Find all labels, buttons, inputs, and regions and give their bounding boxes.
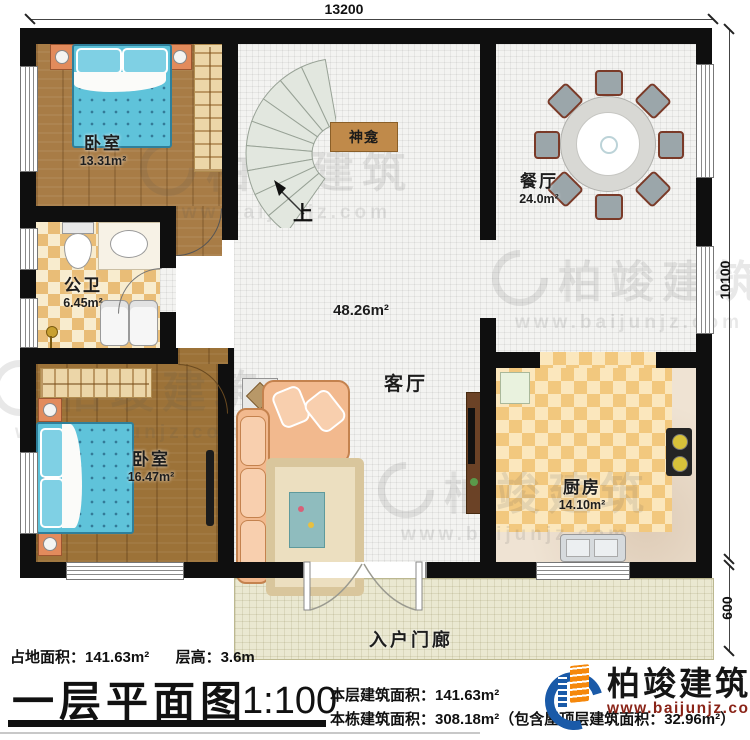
pillow — [40, 478, 64, 528]
window-bedroom2-bottom — [66, 562, 184, 580]
bathroom-label: 公卫 6.45m² — [44, 276, 122, 310]
sink-basin — [594, 539, 618, 557]
dining-label: 餐厅 24.0m² — [502, 172, 576, 206]
dining-chair — [534, 131, 560, 159]
stove-burner — [672, 456, 688, 472]
dimension-porch: 600 — [719, 588, 735, 628]
bedroom1-label: 卧室 13.31m² — [58, 134, 148, 168]
bedroom2-label: 卧室 16.47m² — [106, 450, 196, 484]
sofa-cushion — [240, 468, 266, 518]
site-area-text: 占地面积：141.63m² — [10, 649, 149, 666]
title-underline-thin — [0, 732, 480, 734]
nightstand — [38, 398, 62, 422]
window-dining-right — [696, 64, 714, 178]
bedroom1-wardrobe — [194, 44, 224, 172]
window-bedroom2-left — [20, 452, 38, 534]
wall-dining-left — [480, 28, 496, 240]
dining-chair — [595, 194, 623, 220]
bedroom2-wardrobe — [40, 368, 152, 398]
kitchen-label: 厨房 14.10m² — [534, 478, 630, 512]
window-bathroom-left-1 — [20, 228, 38, 270]
curved-staircase — [238, 42, 336, 228]
entry-double-door — [302, 560, 424, 630]
dining-chair — [658, 131, 684, 159]
window-kitchen-bottom — [536, 562, 630, 580]
footer-site-info: 占地面积：141.63m² 层高：3.6m — [10, 646, 255, 667]
sink-basin — [566, 539, 590, 557]
floor-plan-canvas: 柏竣建筑 www.baijunjz.com 柏竣建筑 www.baijunjz.… — [0, 0, 750, 740]
pillow — [76, 48, 122, 74]
living-area-label: 48.26m² — [318, 302, 404, 319]
plan-scale: 1:100 — [242, 680, 337, 723]
rug-center — [289, 492, 325, 548]
rug-flower — [298, 506, 304, 512]
shrine: 神龛 — [330, 122, 398, 152]
television — [468, 408, 475, 464]
bathroom-doorway — [160, 268, 176, 312]
bathroom-sink — [110, 230, 148, 258]
title-underline — [8, 720, 326, 727]
dining-chair — [595, 70, 623, 96]
wall-bedroom1-right — [222, 28, 238, 240]
nightstand — [38, 532, 62, 556]
wall-bedroom2-right — [218, 348, 234, 578]
wall-exterior-top — [20, 28, 712, 44]
nightstand — [50, 44, 74, 70]
floor-height-text: 层高：3.6m — [176, 649, 255, 666]
stairs-up-label: 上 — [293, 197, 313, 226]
sofa-cushion — [240, 416, 266, 466]
dimension-line-top — [30, 19, 713, 20]
dimension-right: 10100 — [717, 250, 733, 310]
dimension-top: 13200 — [300, 1, 388, 17]
floor-area-text: 本层建筑面积：141.63m² — [330, 684, 499, 705]
refrigerator — [500, 372, 530, 404]
brand-logo-icon — [543, 660, 601, 724]
floor-drain — [46, 326, 58, 338]
kitchen-doorway — [540, 352, 656, 368]
window-living-right — [696, 246, 714, 334]
porch-label: 入户门廊 — [356, 630, 466, 651]
wall-kitchen-top-right — [656, 352, 712, 368]
pillow — [40, 428, 64, 478]
rug-flower — [308, 522, 314, 528]
brand-url: www.baijunjz.com — [607, 700, 750, 718]
window-bedroom1-left — [20, 66, 38, 172]
shrine-label: 神龛 — [349, 127, 379, 147]
pillow — [122, 48, 168, 74]
bedroom2-doorway — [178, 348, 228, 364]
wall-kitchen-top-left — [480, 352, 540, 368]
stove-burner — [672, 434, 688, 450]
living-name-label: 客厅 — [376, 374, 436, 396]
wall-bedroom1-bottom — [20, 206, 176, 222]
bedroom2-tv — [206, 450, 214, 526]
dining-table-center — [600, 136, 618, 154]
brand-logo: 柏竣建筑 www.baijunjz.com — [543, 660, 750, 724]
brand-name: 柏竣建筑 — [607, 667, 750, 700]
plant — [470, 478, 478, 486]
window-bathroom-left-2 — [20, 298, 38, 348]
